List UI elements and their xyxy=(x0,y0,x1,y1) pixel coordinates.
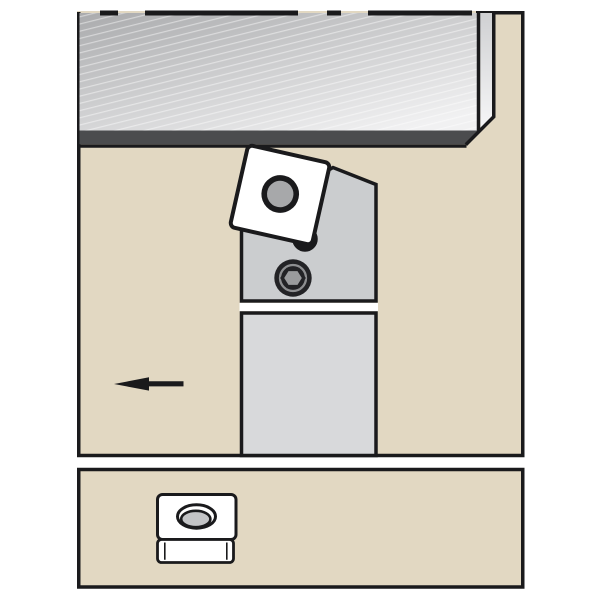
depth-of-cut-band xyxy=(80,131,481,145)
toolholder-shank xyxy=(242,313,377,456)
hex-socket xyxy=(282,269,304,286)
workpiece-end-strip xyxy=(480,13,494,131)
bottom-panel xyxy=(79,470,523,588)
insert-shape-icon xyxy=(158,495,237,563)
toolholder-diagram xyxy=(0,0,600,600)
diagram-stage xyxy=(0,0,600,600)
workpiece xyxy=(78,12,495,146)
toolholder xyxy=(230,145,378,456)
workpiece-hatching xyxy=(80,13,480,132)
hex-socket-screw-icon xyxy=(274,259,311,296)
indexable-insert xyxy=(230,145,330,245)
insert-hole-inner-ellipse xyxy=(181,511,210,527)
bottom-panel-background xyxy=(79,470,523,588)
insert-side-face xyxy=(158,540,234,563)
main-panel xyxy=(77,11,525,457)
holder-shank-separator-stripe xyxy=(240,303,379,311)
